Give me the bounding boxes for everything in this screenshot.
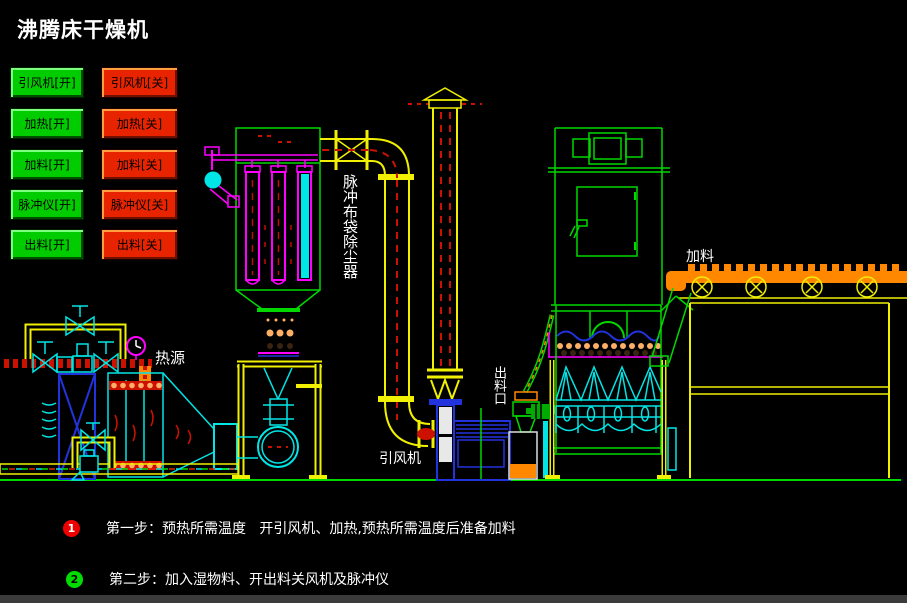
dust-collector	[212, 128, 320, 356]
discharge-assembly	[509, 315, 555, 479]
chimney	[408, 88, 482, 405]
hmi-screen: 沸腾床干燥机 引风机[开] 加热[开] 加料[开] 脉冲仪[开] 出料[开] 引…	[0, 0, 907, 603]
pulse-off-button[interactable]: 脉冲仪[关]	[102, 190, 177, 219]
heat-on-button[interactable]: 加热[开]	[11, 109, 83, 138]
pulse-air-system	[205, 147, 240, 207]
bottom-bar	[0, 595, 907, 603]
conveyor-teeth	[688, 264, 899, 272]
bed-plate-dots	[557, 343, 661, 356]
heat-off-button[interactable]: 加热[关]	[102, 109, 177, 138]
feed-on-button[interactable]: 加料[开]	[11, 150, 83, 179]
induced-draft-fan	[437, 405, 510, 480]
step-1-text: 第一步：预热所需温度 开引风机、加热,预热所需温度后准备加料	[106, 518, 516, 538]
heat-source-label: 热源	[155, 347, 185, 368]
feed-conveyor	[650, 264, 907, 366]
page-title: 沸腾床干燥机	[17, 14, 149, 44]
discharge-port-label: 出料口	[489, 366, 508, 405]
exhaust-duct	[320, 130, 435, 448]
dust-collector-label: 脉冲布袋除尘器	[340, 174, 361, 279]
instruction-step-1: 1 第一步：预热所需温度 开引风机、加热,预热所需温度后准备加料	[63, 518, 516, 538]
bottom-pipe	[0, 423, 238, 480]
discharge-on-button[interactable]: 出料[开]	[11, 230, 83, 259]
pulse-on-button[interactable]: 脉冲仪[开]	[11, 190, 83, 219]
fan-off-button[interactable]: 引风机[关]	[102, 68, 177, 97]
step-2-text: 第二步：加入湿物料、开出料关风机及脉冲仪	[109, 569, 389, 589]
step-2-badge: 2	[66, 571, 83, 588]
discharge-off-button[interactable]: 出料[关]	[102, 230, 177, 259]
blower-stand	[232, 364, 327, 477]
feed-off-button[interactable]: 加料[关]	[102, 150, 177, 179]
feed-table-frame	[668, 303, 889, 478]
id-fan-label: 引风机	[379, 448, 421, 468]
fan-on-button[interactable]: 引风机[开]	[11, 68, 83, 97]
instruction-step-2: 2 第二步：加入湿物料、开出料关风机及脉冲仪	[66, 569, 389, 589]
heat-exchanger	[42, 373, 237, 479]
feeding-label: 加料	[686, 246, 714, 266]
step-1-badge: 1	[63, 520, 80, 537]
